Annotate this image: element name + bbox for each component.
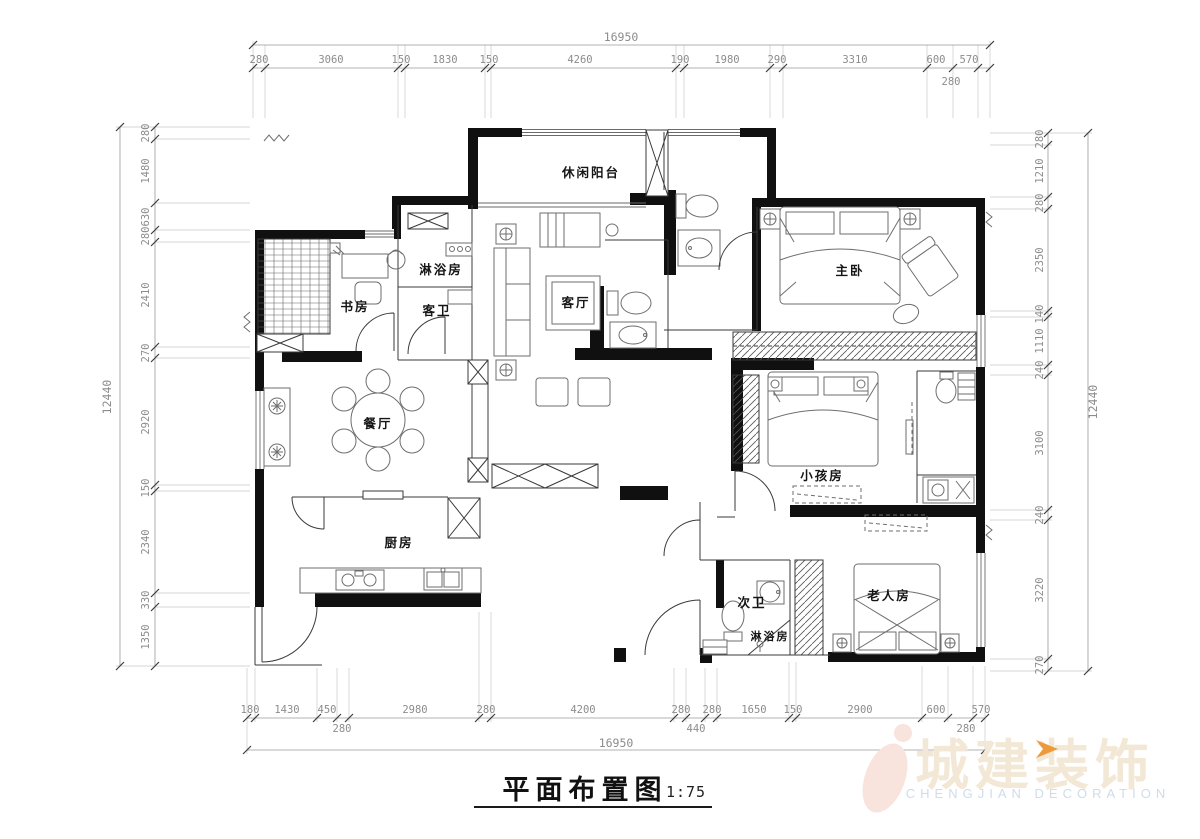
- dim-top-5: 4260: [567, 54, 592, 66]
- living-sofa: [494, 224, 530, 380]
- dim-left-7: 150: [140, 479, 152, 498]
- master-bath-fixtures: [676, 194, 720, 266]
- study-door: [356, 313, 394, 351]
- dim-top-7: 1980: [714, 54, 739, 66]
- dim-bottom-sub-2: 280: [957, 723, 976, 735]
- kids-door: [735, 471, 775, 511]
- dim-bottom-total: 16950: [599, 736, 634, 750]
- elder-bed: [833, 515, 959, 654]
- balcony-lounge: [540, 213, 618, 247]
- dim-chain-top: 16950 280 3060 150 1830 150 4260 190 198…: [249, 30, 994, 88]
- dim-right-9: 3220: [1034, 577, 1046, 602]
- dim-bottom-4: 280: [477, 704, 496, 716]
- floor-plan-sheet: 16950 280 3060 150 1830 150 4260 190 198…: [0, 0, 1200, 839]
- logo-swoosh: [854, 737, 916, 818]
- room-label-balcony: 休闲阳台: [561, 165, 620, 180]
- kitchen-counter: [300, 568, 481, 593]
- kids-bed: [768, 372, 913, 503]
- master-bath-door: [719, 232, 757, 270]
- dim-top-8: 290: [768, 54, 787, 66]
- room-label-dining: 餐厅: [362, 416, 392, 431]
- dim-right-total: 12440: [1086, 385, 1100, 420]
- dim-top-2: 150: [392, 54, 411, 66]
- entry-door: [645, 600, 700, 655]
- dim-bottom-1: 1430: [274, 704, 299, 716]
- room-label-shower-top: 淋浴房: [419, 262, 463, 277]
- dim-bottom-5: 4200: [570, 704, 595, 716]
- title-underline: [474, 806, 712, 808]
- dim-left-10: 1350: [140, 624, 152, 649]
- dim-bottom-10: 2900: [847, 704, 872, 716]
- sheet-scale: 1:75: [666, 783, 706, 801]
- dim-bottom-0: 180: [241, 704, 260, 716]
- dim-top-6: 190: [671, 54, 690, 66]
- room-label-guest-bath: 客卫: [421, 303, 451, 318]
- dim-left-4: 2410: [140, 282, 152, 307]
- kitchen-door: [292, 497, 324, 529]
- dim-top-total: 16950: [604, 30, 639, 44]
- dim-right-5: 1110: [1034, 328, 1046, 353]
- dim-left-1: 1480: [140, 158, 152, 183]
- dim-top-11: 570: [960, 54, 979, 66]
- dim-top-sub: 280: [942, 76, 961, 88]
- dim-right-3: 2350: [1034, 247, 1046, 272]
- master-chair: [901, 235, 959, 297]
- kids-bath-fixtures: [923, 372, 975, 503]
- dim-right-0: 280: [1034, 130, 1046, 149]
- dim-right-6: 240: [1034, 361, 1046, 380]
- dim-right-8: 240: [1034, 506, 1046, 525]
- logo-watermark: 城建装饰 CHENGJIAN DECORATION: [854, 724, 1170, 819]
- title-block: 平面布置图 1:75: [474, 775, 712, 808]
- logo-swoosh-dot: [894, 724, 912, 742]
- logo-subtitle: CHENGJIAN DECORATION: [906, 786, 1170, 801]
- dim-left-total: 12440: [100, 380, 114, 415]
- dim-bottom-sub-0: 280: [333, 723, 352, 735]
- study-bookshelf: [258, 239, 330, 334]
- dim-bottom-8: 1650: [741, 704, 766, 716]
- dim-left-8: 2340: [140, 529, 152, 554]
- guest-bath-fixtures: [607, 291, 656, 348]
- sheet-title: 平面布置图: [503, 775, 668, 805]
- dim-left-3: 280: [140, 227, 152, 246]
- dim-bottom-sub-1: 440: [687, 723, 706, 735]
- dim-chain-left: 12440 280 1480 630 280 2410 270 2920 150…: [100, 123, 159, 670]
- room-label-kids: 小孩房: [799, 468, 844, 483]
- dim-top-9: 3310: [842, 54, 867, 66]
- dim-right-10: 270: [1034, 656, 1046, 675]
- living-poufs: [536, 378, 610, 406]
- dim-top-1: 3060: [318, 54, 343, 66]
- dim-top-10: 600: [927, 54, 946, 66]
- dim-left-5: 270: [140, 344, 152, 363]
- floor-plan-drawing: 16950 280 3060 150 1830 150 4260 190 198…: [0, 0, 1200, 839]
- dim-right-7: 3100: [1034, 430, 1046, 455]
- room-label-elder: 老人房: [866, 588, 911, 603]
- room-label-shower-bottom: 淋浴房: [751, 629, 790, 643]
- dim-chain-right: 12440 280 1210 280 2350 140 1110 240 310…: [1034, 129, 1100, 675]
- dim-bottom-12: 570: [972, 704, 991, 716]
- room-label-second-bath: 次卫: [737, 595, 766, 610]
- room-label-study: 书房: [340, 299, 369, 314]
- dim-chain-bottom: 16950 180 1430 450 2980 280 4200 280 280…: [241, 704, 991, 754]
- dim-right-2: 280: [1034, 194, 1046, 213]
- guest-bath-door: [408, 317, 445, 354]
- room-label-kitchen: 厨房: [384, 535, 413, 550]
- dim-left-9: 330: [140, 591, 152, 610]
- dining-sideboard: [264, 388, 290, 466]
- dim-top-0: 280: [250, 54, 269, 66]
- dim-bottom-6: 280: [672, 704, 691, 716]
- kids-wardrobe: [733, 375, 759, 463]
- dim-top-4: 150: [480, 54, 499, 66]
- master-side-table: [891, 301, 922, 327]
- dim-bottom-3: 2980: [402, 704, 427, 716]
- room-label-living: 客厅: [560, 295, 590, 310]
- dim-bottom-2: 450: [318, 704, 337, 716]
- dim-right-4: 140: [1034, 305, 1046, 324]
- porch-door: [262, 607, 317, 662]
- master-bed: [760, 207, 920, 304]
- room-label-master: 主卧: [835, 263, 864, 278]
- dim-left-2: 630: [140, 208, 152, 227]
- elder-door: [664, 520, 700, 556]
- dim-bottom-9: 150: [784, 704, 803, 716]
- dim-right-1: 1210: [1034, 158, 1046, 183]
- dim-bottom-11: 600: [927, 704, 946, 716]
- dim-left-6: 2920: [140, 409, 152, 434]
- dim-bottom-7: 280: [703, 704, 722, 716]
- elder-wardrobe: [795, 560, 823, 655]
- dim-left-0: 280: [140, 124, 152, 143]
- study-desk: [330, 243, 405, 304]
- dim-top-3: 1830: [432, 54, 457, 66]
